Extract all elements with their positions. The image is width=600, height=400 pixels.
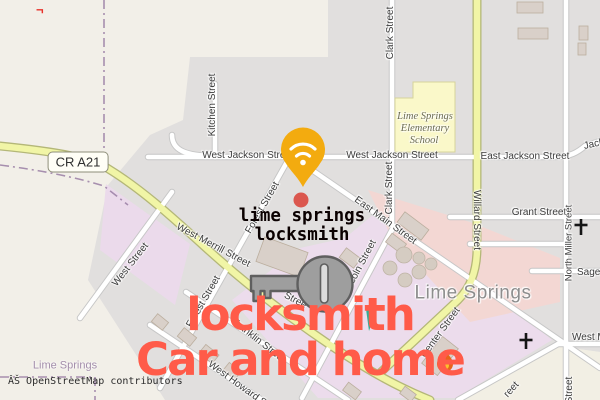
marker-layer xyxy=(0,0,600,400)
business-dot-marker xyxy=(294,193,309,208)
location-pin-icon[interactable] xyxy=(281,128,325,187)
map-attribution[interactable]: ÂŠ OpenStreetMap contributors xyxy=(8,376,183,387)
stray-red-mark: ¬ xyxy=(36,2,44,17)
map-canvas[interactable]: Clark Street Kitchen Street West Jackson… xyxy=(0,0,600,400)
